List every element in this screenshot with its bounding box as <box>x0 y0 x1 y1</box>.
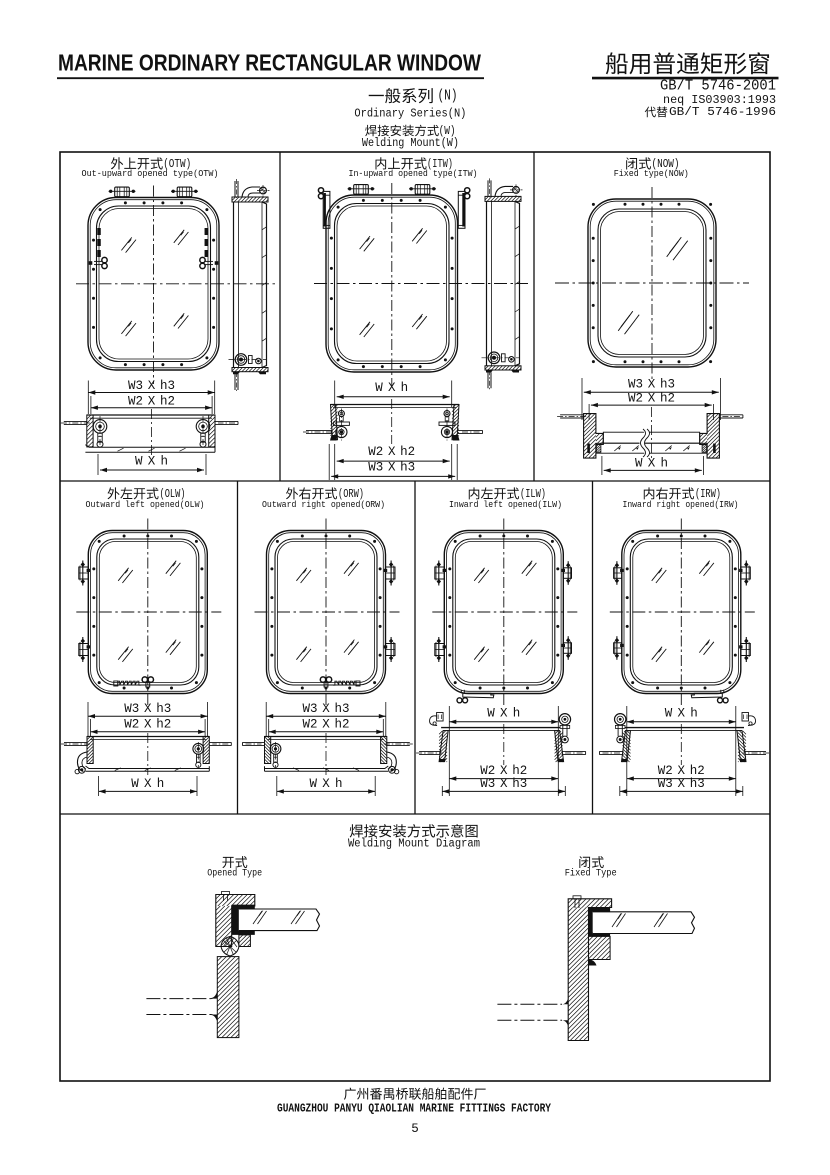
svg-text:Opened Type: Opened Type <box>207 868 262 880</box>
svg-text:X: X <box>678 777 686 791</box>
svg-text:X: X <box>648 377 656 391</box>
svg-text:h3: h3 <box>512 777 527 791</box>
svg-text:h: h <box>160 454 168 468</box>
svg-text:h2: h2 <box>400 445 415 459</box>
svg-text:X: X <box>322 777 330 791</box>
svg-text:W3: W3 <box>480 777 495 791</box>
svg-text:Welding Mount(W): Welding Mount(W) <box>362 136 459 150</box>
svg-text:W: W <box>635 456 643 470</box>
svg-text:h3: h3 <box>400 460 415 474</box>
svg-text:X: X <box>388 460 396 474</box>
svg-text:X: X <box>500 777 508 791</box>
svg-text:W3: W3 <box>124 702 139 716</box>
svg-text:h: h <box>157 777 165 791</box>
svg-text:X: X <box>388 381 396 395</box>
svg-text:Inward left opened(ILW): Inward left opened(ILW) <box>449 499 562 510</box>
svg-text:Outward left opened(OLW): Outward left opened(OLW) <box>86 499 205 510</box>
svg-text:X: X <box>148 454 156 468</box>
svg-text:MARINE ORDINARY RECTANGULAR WI: MARINE ORDINARY RECTANGULAR WINDOW <box>58 49 482 75</box>
svg-text:W: W <box>310 777 318 791</box>
svg-text:X: X <box>144 777 152 791</box>
svg-text:Outward right opened(ORW): Outward right opened(ORW) <box>262 499 385 510</box>
svg-text:W3: W3 <box>658 777 673 791</box>
svg-text:GB/T 5746-1996: GB/T 5746-1996 <box>669 105 776 119</box>
svg-text:W: W <box>487 706 495 720</box>
svg-text:X: X <box>648 391 656 405</box>
svg-text:h3: h3 <box>690 777 705 791</box>
svg-text:W3: W3 <box>128 379 143 393</box>
svg-text:W2: W2 <box>368 445 383 459</box>
svg-text:W3: W3 <box>303 702 318 716</box>
svg-text:5: 5 <box>411 1122 419 1136</box>
svg-text:h3: h3 <box>660 377 675 391</box>
svg-text:Out-upward opened type(OTW): Out-upward opened type(OTW) <box>82 168 219 179</box>
svg-text:Welding Mount Diagram: Welding Mount Diagram <box>348 837 480 850</box>
svg-text:h3: h3 <box>334 702 349 716</box>
svg-text:h2: h2 <box>156 717 171 731</box>
svg-text:W: W <box>135 454 143 468</box>
svg-text:X: X <box>144 702 152 716</box>
svg-text:X: X <box>648 456 656 470</box>
svg-text:h: h <box>513 706 521 720</box>
svg-text:W3: W3 <box>368 460 383 474</box>
svg-text:X: X <box>500 706 508 720</box>
svg-text:In-upward opened type(ITW): In-upward opened type(ITW) <box>349 168 478 179</box>
svg-text:Inward right opened(IRW): Inward right opened(IRW) <box>623 499 739 510</box>
svg-text:h3: h3 <box>160 379 175 393</box>
svg-text:Fixed type(NOW): Fixed type(NOW) <box>614 168 689 179</box>
svg-text:h2: h2 <box>660 391 675 405</box>
svg-text:h3: h3 <box>156 702 171 716</box>
svg-text:W2: W2 <box>124 717 139 731</box>
svg-text:X: X <box>322 702 330 716</box>
svg-text:Fixed Type: Fixed Type <box>565 868 617 880</box>
svg-text:W2: W2 <box>128 394 143 408</box>
svg-text:W3: W3 <box>628 377 643 391</box>
svg-text:X: X <box>144 717 152 731</box>
svg-text:W: W <box>375 381 383 395</box>
svg-text:h: h <box>690 706 698 720</box>
svg-text:Ordinary Series(N): Ordinary Series(N) <box>354 107 466 121</box>
svg-text:X: X <box>388 445 396 459</box>
svg-text:h2: h2 <box>160 394 175 408</box>
svg-text:X: X <box>148 394 156 408</box>
svg-text:h: h <box>660 456 668 470</box>
svg-text:h2: h2 <box>334 717 349 731</box>
svg-text:GUANGZHOU PANYU QIAOLIAN MARIN: GUANGZHOU PANYU QIAOLIAN MARINE FITTINGS… <box>277 1102 551 1115</box>
svg-text:W2: W2 <box>303 717 318 731</box>
svg-text:h: h <box>401 381 409 395</box>
svg-text:(N): (N) <box>438 88 458 105</box>
svg-text:X: X <box>148 379 156 393</box>
svg-text:X: X <box>322 717 330 731</box>
svg-text:X: X <box>678 706 686 720</box>
svg-text:W: W <box>665 706 673 720</box>
svg-text:W2: W2 <box>628 391 643 405</box>
svg-text:h: h <box>335 777 343 791</box>
svg-text:W: W <box>131 777 139 791</box>
